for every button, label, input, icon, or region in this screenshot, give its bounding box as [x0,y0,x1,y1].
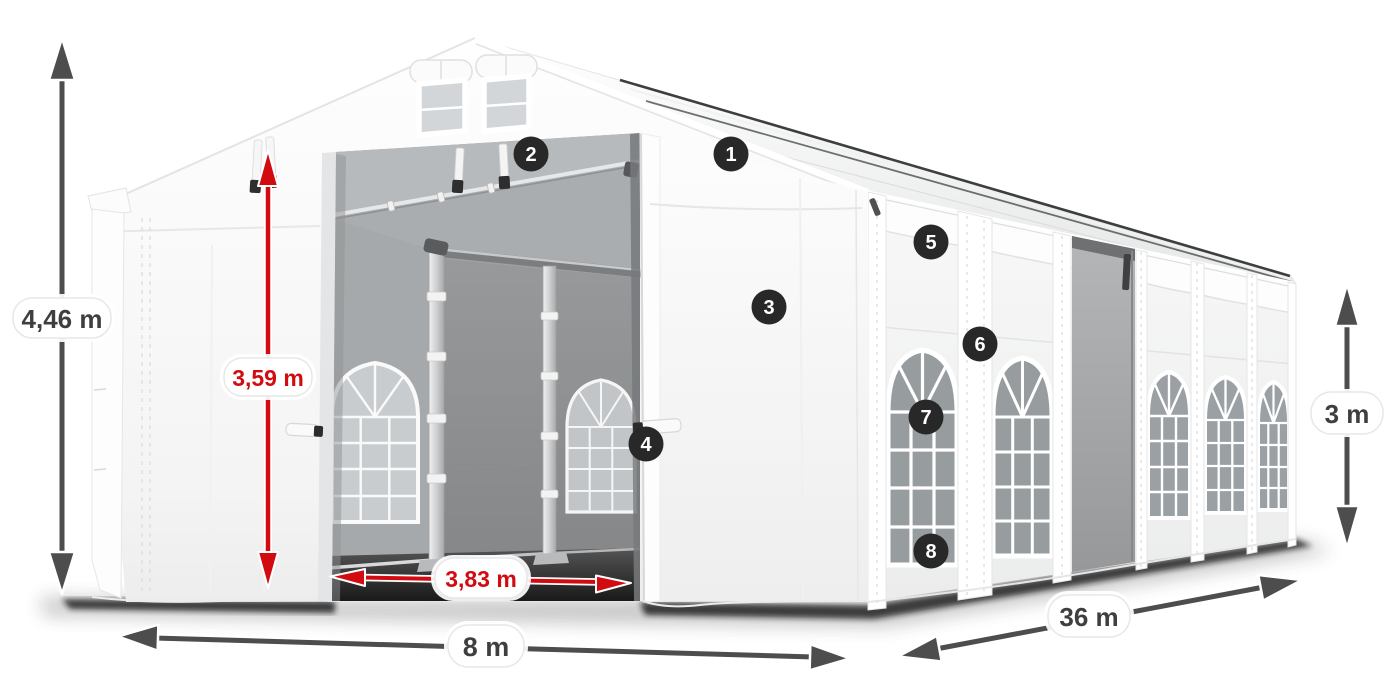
callout-1[interactable]: 1 [714,137,749,172]
callout-number: 4 [640,434,652,456]
callout-3[interactable]: 3 [752,290,787,325]
arrow-head-right [1258,575,1302,601]
arrow-head-up [1335,284,1359,326]
callout-4[interactable]: 4 [629,427,664,462]
entrance-opening-interior [318,133,640,601]
roof-vent-left [410,60,472,135]
pillar-end [1288,282,1296,547]
pillar [1136,250,1147,570]
diagram-canvas: 4,46 m 3,59 m 3,83 m 8 m [0,0,1400,700]
interior-window-rear [567,380,635,512]
dim-label-length: 36 m [1059,602,1118,632]
dim-label-width: 8 m [463,632,510,662]
arrow-head-down [49,552,75,594]
arrow-head-down [1335,506,1359,548]
side-window-5 [1258,382,1289,510]
callout-number: 7 [920,407,931,429]
callout-2[interactable]: 2 [514,137,549,172]
side-open-bay [1072,236,1135,572]
arrow-head-left [898,636,942,662]
front-door-panel [633,133,868,606]
side-window-3 [1148,372,1190,518]
dim-label-entrance-width: 3,83 m [445,566,517,592]
tent-dimensions-diagram: 4,46 m 3,59 m 3,83 m 8 m [0,0,1400,700]
callout-7[interactable]: 7 [909,400,944,435]
pillar [1191,261,1204,562]
side-window-1 [888,350,957,565]
dim-side-height: 3 m [1307,284,1387,548]
strap-buckle [452,180,464,194]
tie-clasp [314,426,324,437]
callout-8[interactable]: 8 [914,534,949,569]
callout-number: 2 [525,144,536,166]
pillar [958,211,992,600]
callout-number: 1 [725,144,736,166]
roof-vent-right [476,55,537,131]
callout-number: 8 [925,541,936,563]
pole-foot [533,552,569,565]
side-window-2 [993,358,1052,556]
strap-buckle [499,176,511,190]
front-left-corner-strip [92,209,124,598]
callout-number: 5 [925,232,936,254]
interior-window-left [332,363,418,522]
callout-number: 6 [974,334,985,356]
arrow-head-right [810,644,850,670]
callout-5[interactable]: 5 [914,225,949,260]
dim-width: 8 m [118,621,850,671]
dim-label-inner-height: 3,59 m [232,365,304,391]
side-window-4 [1205,377,1246,513]
dim-label-total-height: 4,46 m [22,304,103,334]
arrow-head-up [49,38,75,80]
callout-number: 3 [763,297,774,319]
callout-6[interactable]: 6 [963,327,998,362]
arrow-head-left [118,625,158,651]
dim-label-side-height: 3 m [1325,399,1370,429]
